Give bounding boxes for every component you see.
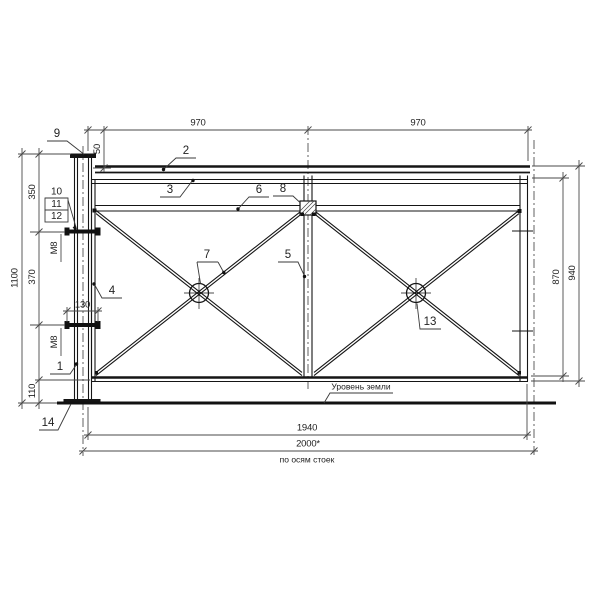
bolt-label-lower: M8 bbox=[49, 328, 61, 356]
callout-number: 10 bbox=[51, 187, 63, 198]
callout-number: 4 bbox=[109, 285, 116, 297]
callout-9: 9 bbox=[47, 128, 87, 157]
clamp-bar bbox=[66, 230, 99, 234]
leader bbox=[239, 197, 270, 209]
frame-top-member bbox=[91, 180, 528, 184]
callout-3: 3 bbox=[160, 179, 195, 197]
dim-value: 970 bbox=[190, 118, 205, 129]
clamp-bolt-left bbox=[65, 321, 70, 329]
leader bbox=[278, 262, 305, 276]
ground-level-label: Уровень земли bbox=[324, 381, 393, 403]
leader bbox=[68, 200, 77, 229]
leader bbox=[47, 141, 85, 155]
callout-number: 2 bbox=[183, 145, 189, 157]
leader-dot bbox=[236, 207, 239, 210]
callout-number: 8 bbox=[280, 183, 286, 195]
leader bbox=[197, 262, 224, 284]
callout-number: 3 bbox=[167, 184, 173, 196]
callout-6: 6 bbox=[236, 184, 269, 211]
drawing-canvas: 970 970 50 350 370 110 1100 130 bbox=[0, 0, 600, 600]
joint bbox=[301, 213, 305, 217]
joint-dots bbox=[93, 209, 522, 375]
callout-8: 8 bbox=[273, 183, 300, 202]
right-end-member bbox=[520, 176, 528, 382]
dim-value: 110 bbox=[27, 384, 38, 399]
bolt-label-upper: M8 bbox=[49, 234, 61, 262]
dim-value: 2000* bbox=[296, 439, 320, 450]
dim-value: 1100 bbox=[10, 268, 21, 288]
callout-number: 13 bbox=[424, 316, 437, 328]
joint bbox=[95, 371, 99, 375]
dim-value: 870 bbox=[551, 269, 562, 284]
fence-section-drawing: 970 970 50 350 370 110 1100 130 bbox=[0, 0, 600, 600]
bolt-size: M8 bbox=[49, 242, 60, 255]
dim-line bbox=[304, 126, 532, 161]
dim-value: 1940 bbox=[297, 423, 317, 434]
leader bbox=[50, 365, 77, 375]
dim-line bbox=[531, 172, 569, 382]
dim-50: 50 bbox=[92, 126, 111, 172]
clamp-bar bbox=[66, 323, 99, 327]
dim-value: 370 bbox=[27, 269, 38, 284]
leader bbox=[273, 196, 300, 203]
dimensions: 970 970 50 350 370 110 1100 130 bbox=[10, 118, 585, 465]
dim-1940: 1940 bbox=[84, 384, 531, 440]
callout-5: 5 bbox=[278, 249, 306, 278]
callout-number: 5 bbox=[285, 249, 291, 261]
callout-number: 1 bbox=[57, 361, 63, 373]
dim-line bbox=[84, 126, 312, 151]
callout-number: 11 bbox=[51, 199, 62, 210]
joint bbox=[93, 209, 97, 213]
leader-dot bbox=[162, 168, 165, 171]
right-member-clamp-marks bbox=[512, 231, 533, 331]
callout-4: 4 bbox=[92, 282, 122, 298]
leader-dot bbox=[75, 362, 78, 365]
joint bbox=[518, 371, 522, 375]
callout-14: 14 bbox=[39, 404, 71, 430]
leader-dot bbox=[92, 282, 95, 285]
structure bbox=[57, 126, 556, 456]
dim-970-right: 970 bbox=[304, 118, 532, 161]
diagonal-braces bbox=[96, 210, 519, 375]
dim-value: 350 bbox=[27, 184, 38, 199]
callout-7: 7 bbox=[197, 249, 226, 283]
dim-value: 940 bbox=[567, 265, 578, 280]
ground-text: Уровень земли bbox=[331, 381, 390, 391]
joint bbox=[518, 209, 522, 213]
dim-870: 870 bbox=[531, 172, 569, 382]
dim-value: 970 bbox=[410, 118, 425, 129]
leader-dot bbox=[84, 154, 87, 157]
leader-dot bbox=[303, 275, 306, 278]
dim-note: по осям стоек bbox=[280, 454, 335, 464]
clamp-bolt-right bbox=[96, 321, 101, 329]
dim-value: 50 bbox=[92, 144, 103, 154]
clamp-bolt-left bbox=[65, 228, 70, 236]
callout-stack-10-11-12: 10 11 12 bbox=[45, 187, 77, 231]
dim-1100: 1100 bbox=[10, 148, 26, 409]
bolt-size: M8 bbox=[49, 336, 60, 349]
leader-dot bbox=[191, 179, 194, 182]
callout-number: 6 bbox=[256, 184, 262, 196]
leader-dot bbox=[222, 271, 225, 274]
dim-value: 130 bbox=[75, 300, 90, 311]
clamp-bolt-right bbox=[96, 228, 101, 236]
dim-130: 130 bbox=[63, 300, 102, 322]
callout-number: 12 bbox=[51, 211, 63, 222]
callout-number: 14 bbox=[42, 417, 55, 429]
callout-number: 7 bbox=[204, 249, 210, 261]
dim-2000: 2000* по осям стоек bbox=[79, 439, 538, 465]
dim-970-left: 970 bbox=[84, 118, 312, 151]
joint bbox=[312, 213, 316, 217]
callout-number: 9 bbox=[54, 128, 60, 140]
